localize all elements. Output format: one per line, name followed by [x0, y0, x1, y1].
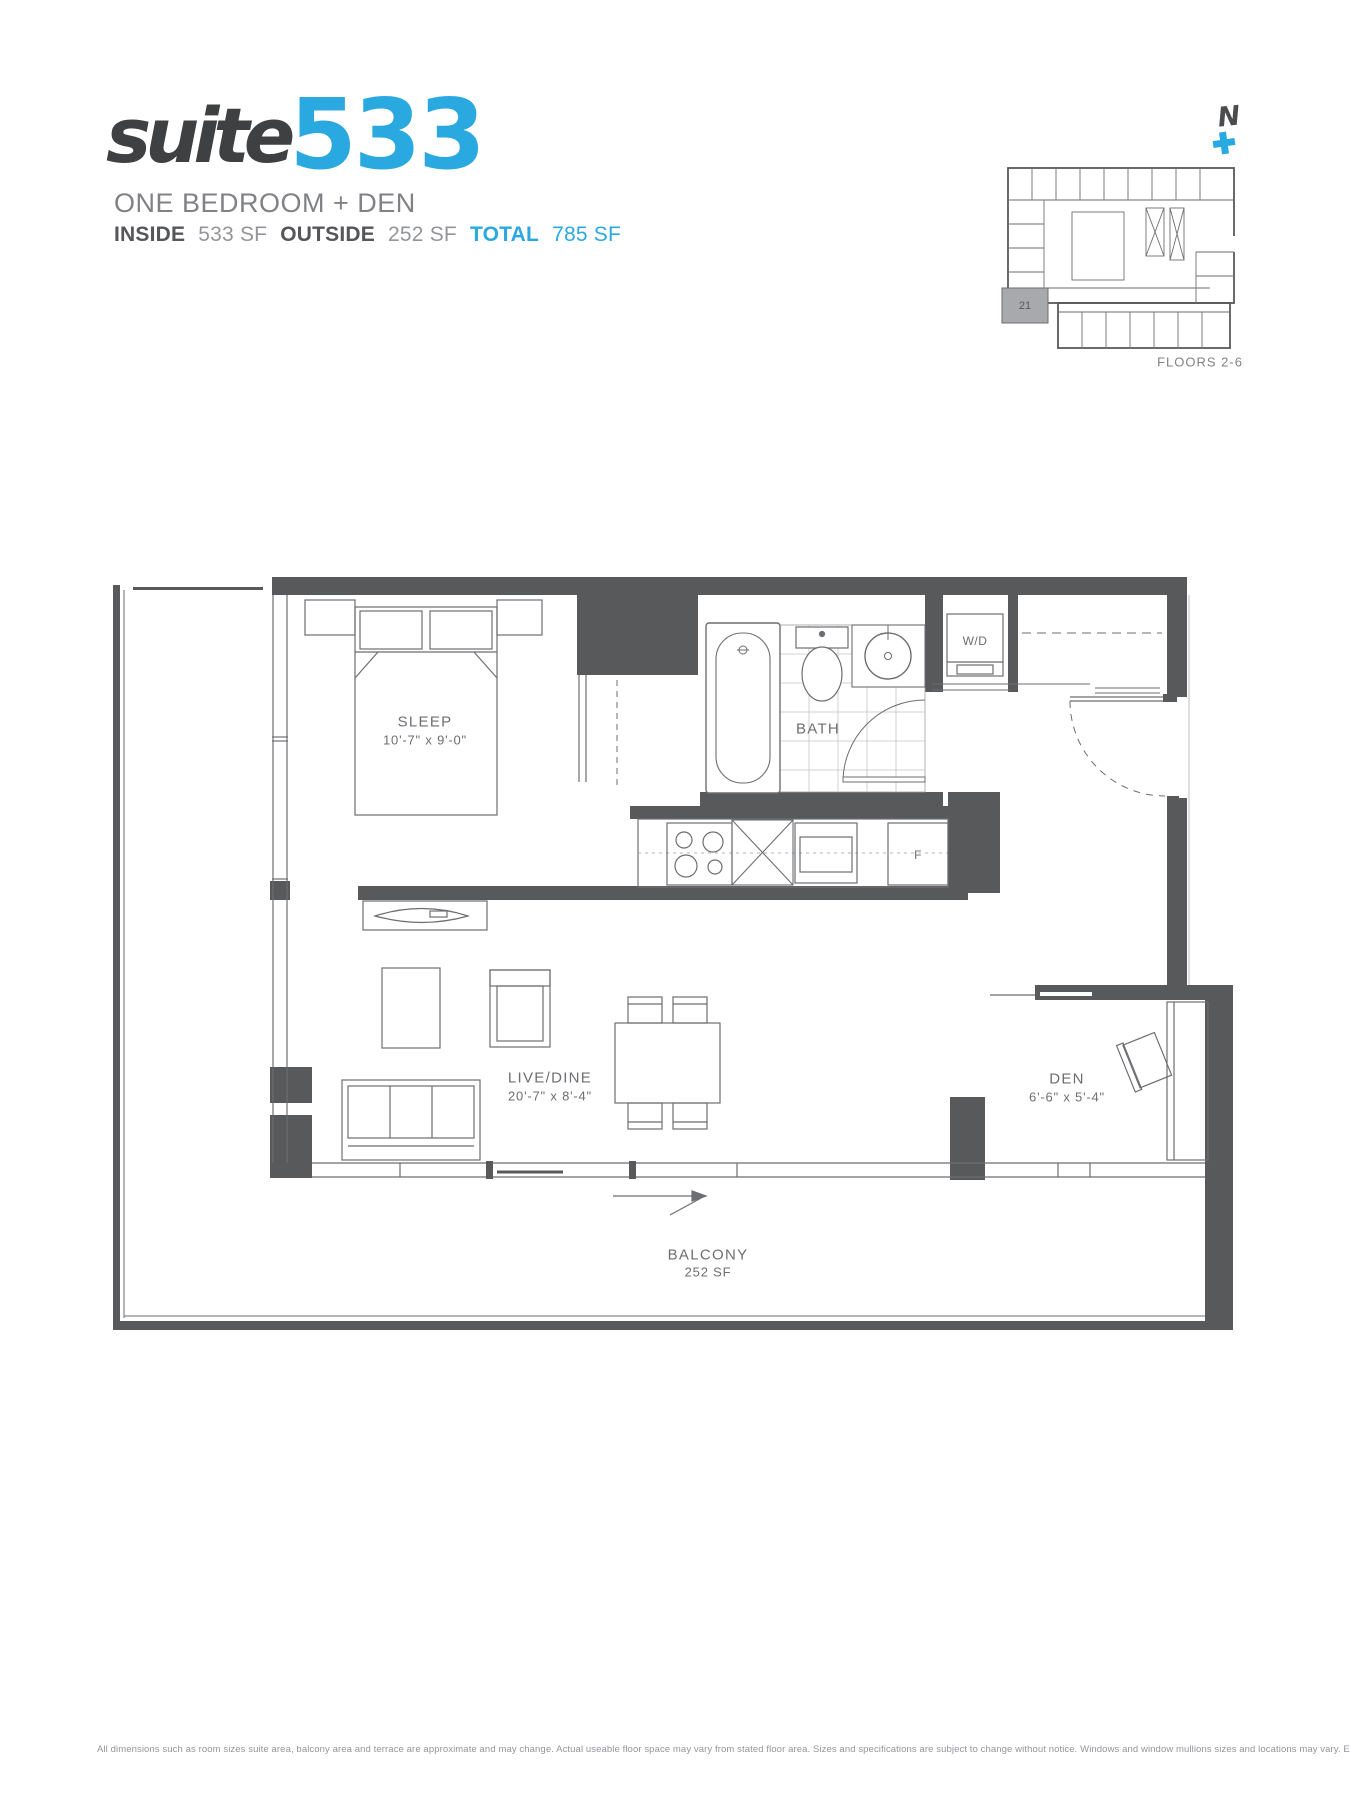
- den-room-label: DEN: [1049, 1071, 1085, 1088]
- suite-type-subtitle: ONE BEDROOM + DEN: [114, 188, 416, 219]
- disclaimer-text: All dimensions such as room sizes suite …: [97, 1744, 1277, 1755]
- floorplan-page: suite533 ONE BEDROOM + DEN INSIDE 533 SF…: [0, 0, 1350, 1800]
- bathtub: [706, 623, 780, 793]
- floorplan-drawing: [0, 0, 1350, 1800]
- balcony-sliding-door: [486, 1161, 636, 1179]
- balcony-label: BALCONY: [668, 1247, 749, 1264]
- fridge-label: F: [914, 848, 922, 862]
- dining-set: [615, 997, 720, 1129]
- north-label: N: [1216, 100, 1242, 133]
- den-wall-inset: [1040, 992, 1092, 996]
- tv-console: [363, 901, 487, 930]
- outside-label: OUTSIDE: [280, 223, 375, 246]
- inside-value: 533 SF: [198, 223, 267, 246]
- livedine-room-label: LIVE/DINE: [508, 1070, 592, 1087]
- balcony-outline: [113, 585, 1233, 1330]
- nightstands: [305, 600, 542, 635]
- bed: [355, 607, 497, 815]
- keyplan-unit-number: 21: [1019, 300, 1031, 312]
- outside-value: 252 SF: [388, 223, 457, 246]
- balcony-inner-lines: [124, 590, 1205, 1318]
- total-value: 785 SF: [552, 223, 621, 246]
- entry-door: [1070, 697, 1165, 796]
- total-label: TOTAL: [470, 223, 539, 246]
- livedine-room-dims: 20'-7" x 8'-4": [508, 1089, 592, 1104]
- suite-logo-number: 533: [289, 78, 482, 191]
- den-desk: [1167, 1002, 1208, 1160]
- balcony-area: 252 SF: [685, 1265, 732, 1280]
- sleep-room-dims: 10'-7" x 9'-0": [383, 733, 467, 748]
- cooktop: [667, 823, 732, 885]
- coffee-table: [382, 968, 440, 1048]
- den-chair: [1117, 1031, 1173, 1092]
- inside-label: INSIDE: [114, 223, 185, 246]
- north-compass-icon: [1212, 131, 1237, 156]
- sleep-room-label: SLEEP: [398, 714, 453, 731]
- balcony-arrow: [613, 1191, 706, 1215]
- bath-room-label: BATH: [796, 721, 840, 738]
- suite-logo-word: suite: [106, 91, 289, 180]
- kitchen-sink: [795, 823, 857, 883]
- keyplan-notch: [1210, 236, 1236, 252]
- area-stats: INSIDE 533 SF OUTSIDE 252 SF TOTAL 785 S…: [114, 223, 628, 247]
- suite-logo: suite533: [106, 78, 483, 191]
- sofa: [342, 1080, 480, 1160]
- bedroom-closet: [579, 675, 617, 790]
- toilet: [796, 627, 848, 701]
- den-room-dims: 6'-6" x 5'-4": [1029, 1090, 1105, 1105]
- floors-label: FLOORS 2-6: [1157, 355, 1243, 370]
- bath-sink: [852, 625, 925, 687]
- south-window: [312, 1163, 1205, 1177]
- armchair: [490, 970, 550, 1047]
- keyplan: [1002, 168, 1236, 348]
- washer-dryer-label: W/D: [963, 634, 988, 648]
- kitchen-cabinet-x: [732, 820, 793, 885]
